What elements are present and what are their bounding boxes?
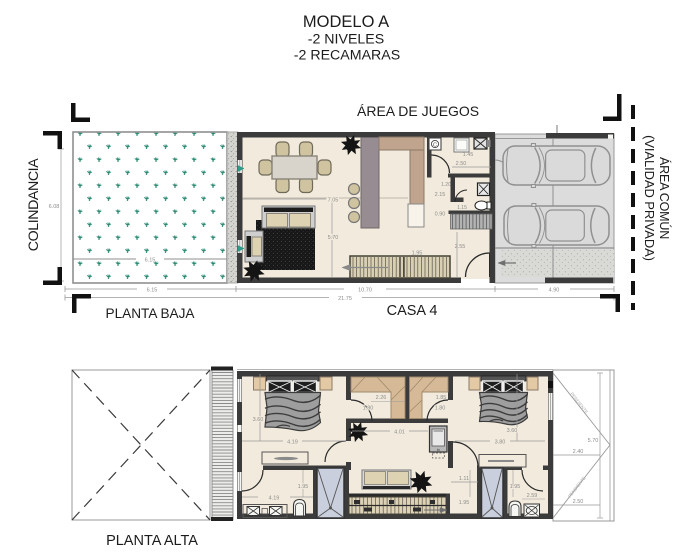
- svg-text:(VIALIDAD PRIVADA): (VIALIDAD PRIVADA): [642, 135, 657, 261]
- svg-text:1.45: 1.45: [463, 152, 474, 158]
- svg-text:4.19: 4.19: [269, 496, 280, 502]
- svg-text:2.59: 2.59: [527, 493, 538, 499]
- svg-text:PLANTA ALTA: PLANTA ALTA: [106, 533, 198, 549]
- svg-text:2.55: 2.55: [455, 244, 466, 250]
- svg-text:ÁREA DE JUEGOS: ÁREA DE JUEGOS: [357, 103, 479, 119]
- svg-text:4.01: 4.01: [394, 430, 405, 436]
- svg-text:5.70: 5.70: [328, 235, 339, 241]
- svg-text:3.80: 3.80: [495, 440, 506, 446]
- svg-text:5.70: 5.70: [588, 438, 599, 444]
- svg-text:6.08: 6.08: [49, 204, 60, 210]
- svg-text:2.15: 2.15: [435, 192, 446, 198]
- svg-text:2.50: 2.50: [573, 499, 584, 505]
- svg-text:3.60: 3.60: [507, 428, 518, 434]
- svg-text:1.95: 1.95: [412, 251, 423, 257]
- svg-text:ÁREA COMÚN: ÁREA COMÚN: [657, 157, 672, 239]
- svg-text:3.60: 3.60: [253, 417, 264, 423]
- svg-text:6.15: 6.15: [147, 288, 158, 294]
- svg-text:1.95: 1.95: [510, 484, 521, 490]
- svg-text:21.75: 21.75: [338, 296, 352, 302]
- svg-text:10.70: 10.70: [358, 288, 372, 294]
- svg-text:6.15: 6.15: [145, 258, 156, 264]
- svg-text:MODELO A: MODELO A: [303, 13, 389, 31]
- svg-text:COLINDANCIA: COLINDANCIA: [26, 158, 42, 252]
- svg-text:1.15: 1.15: [457, 205, 467, 211]
- svg-text:2.50: 2.50: [456, 161, 467, 167]
- svg-text:7.05: 7.05: [328, 198, 339, 204]
- svg-text:C: C: [433, 142, 437, 148]
- svg-text:4.90: 4.90: [549, 288, 560, 294]
- svg-text:1.20: 1.20: [441, 182, 451, 188]
- svg-text:tv: tv: [437, 447, 440, 452]
- svg-text:1.80: 1.80: [363, 406, 374, 412]
- svg-text:-2 NIVELES: -2 NIVELES: [308, 32, 385, 48]
- svg-text:1.80: 1.80: [435, 406, 446, 412]
- svg-text:1.85: 1.85: [436, 395, 447, 401]
- svg-text:1.95: 1.95: [298, 484, 309, 490]
- svg-text:1.95: 1.95: [459, 500, 470, 506]
- svg-text:PLANTA BAJA: PLANTA BAJA: [106, 306, 196, 321]
- svg-text:4.19: 4.19: [287, 440, 298, 446]
- svg-text:-2 RECAMARAS: -2 RECAMARAS: [294, 48, 400, 64]
- svg-text:CASA 4: CASA 4: [387, 303, 438, 319]
- svg-text:2.40: 2.40: [573, 449, 584, 455]
- svg-text:0.90: 0.90: [435, 212, 446, 218]
- svg-text:2.26: 2.26: [376, 395, 387, 401]
- svg-text:1.11: 1.11: [459, 476, 469, 482]
